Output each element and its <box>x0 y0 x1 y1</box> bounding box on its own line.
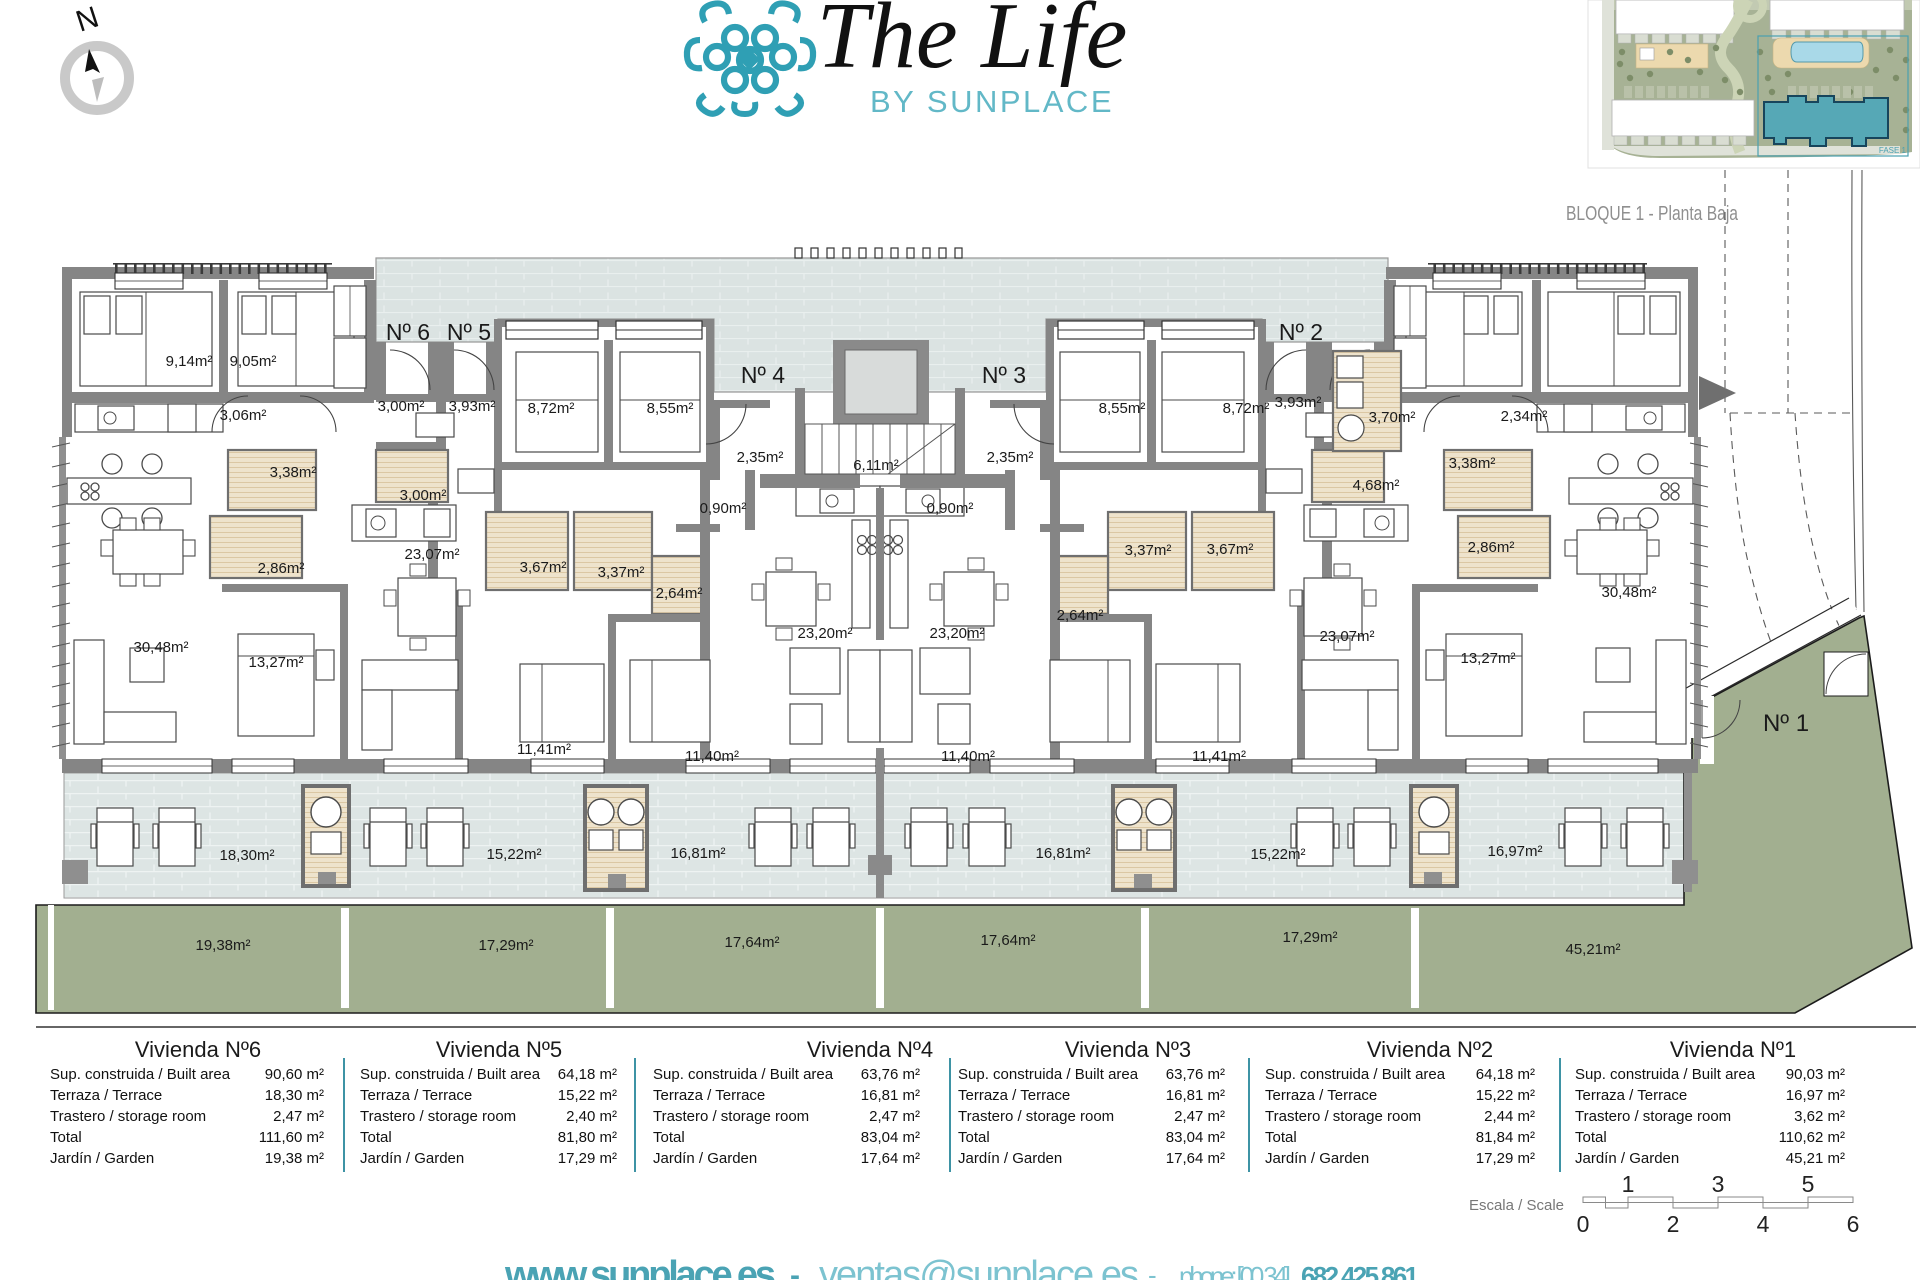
svg-text:23,07m²: 23,07m² <box>404 546 459 563</box>
svg-text:Vivienda Nº2: Vivienda Nº2 <box>1367 1037 1493 1062</box>
svg-text:3,37m²: 3,37m² <box>598 564 645 581</box>
svg-text:Total: Total <box>958 1129 990 1146</box>
svg-text:2,44 m²: 2,44 m² <box>1484 1108 1535 1125</box>
svg-text:64,18 m²: 64,18 m² <box>1476 1066 1535 1083</box>
svg-text:Total: Total <box>1575 1129 1607 1146</box>
svg-text:4: 4 <box>1757 1211 1770 1237</box>
svg-text:Sup. construida / Built area: Sup. construida / Built area <box>360 1066 541 1083</box>
svg-text:18,30 m²: 18,30 m² <box>265 1087 324 1104</box>
svg-text:Terraza / Terrace: Terraza / Terrace <box>653 1087 765 1104</box>
svg-text:Vivienda Nº6: Vivienda Nº6 <box>135 1037 261 1062</box>
svg-text:2,47 m²: 2,47 m² <box>869 1108 920 1125</box>
svg-text:19,38 m²: 19,38 m² <box>265 1150 324 1167</box>
svg-text:4,68m²: 4,68m² <box>1353 477 1400 494</box>
svg-text:Vivienda Nº3: Vivienda Nº3 <box>1065 1037 1191 1062</box>
svg-text:64,18 m²: 64,18 m² <box>558 1066 617 1083</box>
svg-text:17,29 m²: 17,29 m² <box>558 1150 617 1167</box>
svg-text:Total: Total <box>50 1129 82 1146</box>
svg-text:Jardín / Garden: Jardín / Garden <box>50 1150 154 1167</box>
svg-text:16,97m²: 16,97m² <box>1487 843 1542 860</box>
svg-text:Sup. construida / Built area: Sup. construida / Built area <box>653 1066 834 1083</box>
svg-text:Trastero / storage room: Trastero / storage room <box>1265 1108 1421 1125</box>
svg-text:11,41m²: 11,41m² <box>517 741 571 758</box>
svg-text:Trastero / storage room: Trastero / storage room <box>1575 1108 1731 1125</box>
svg-text:2,35m²: 2,35m² <box>737 449 784 466</box>
svg-text:Terraza / Terrace: Terraza / Terrace <box>958 1087 1070 1104</box>
svg-text:Trastero / storage room: Trastero / storage room <box>958 1108 1114 1125</box>
svg-text:16,81 m²: 16,81 m² <box>861 1087 920 1104</box>
svg-text:8,55m²: 8,55m² <box>647 400 694 417</box>
svg-text:BY SUNPLACE: BY SUNPLACE <box>870 84 1114 119</box>
svg-text:3: 3 <box>1712 1171 1725 1197</box>
svg-text:2,64m²: 2,64m² <box>1057 607 1104 624</box>
svg-text:3,67m²: 3,67m² <box>1207 541 1254 558</box>
svg-text:15,22m²: 15,22m² <box>486 846 541 863</box>
svg-text:6: 6 <box>1847 1211 1860 1237</box>
svg-text:The Life: The Life <box>817 0 1128 88</box>
svg-text:30,48m²: 30,48m² <box>133 639 188 656</box>
svg-text:5: 5 <box>1802 1171 1815 1197</box>
svg-text:Jardín / Garden: Jardín / Garden <box>958 1150 1062 1167</box>
svg-text:Trastero / storage room: Trastero / storage room <box>360 1108 516 1125</box>
svg-text:-: - <box>1148 1260 1157 1280</box>
svg-text:Nº 1: Nº 1 <box>1763 710 1809 737</box>
svg-text:83,04 m²: 83,04 m² <box>1166 1129 1225 1146</box>
svg-text:11,41m²: 11,41m² <box>1192 748 1246 765</box>
svg-text:15,22 m²: 15,22 m² <box>1476 1087 1535 1104</box>
svg-text:ventas@sunplace.es: ventas@sunplace.es <box>819 1254 1139 1280</box>
svg-text:2,47 m²: 2,47 m² <box>1174 1108 1225 1125</box>
svg-text:3,06m²: 3,06m² <box>220 407 267 424</box>
svg-text:FASE 1: FASE 1 <box>1879 146 1907 155</box>
svg-text:17,64m²: 17,64m² <box>724 934 779 951</box>
svg-text:Terraza / Terrace: Terraza / Terrace <box>360 1087 472 1104</box>
svg-text:Sup. construida / Built area: Sup. construida / Built area <box>1575 1066 1756 1083</box>
svg-text:Nº 4: Nº 4 <box>741 362 785 388</box>
svg-text:Nº 3: Nº 3 <box>982 362 1026 388</box>
svg-text:Jardín / Garden: Jardín / Garden <box>360 1150 464 1167</box>
svg-text:2: 2 <box>1667 1211 1680 1237</box>
svg-text:18,30m²: 18,30m² <box>219 847 274 864</box>
svg-text:Vivienda Nº1: Vivienda Nº1 <box>1670 1037 1796 1062</box>
svg-text:Jardín / Garden: Jardín / Garden <box>653 1150 757 1167</box>
svg-text:3,00m²: 3,00m² <box>400 487 447 504</box>
svg-text:Vivienda Nº4: Vivienda Nº4 <box>807 1037 933 1062</box>
svg-text:-: - <box>790 1259 800 1280</box>
svg-text:17,64 m²: 17,64 m² <box>1166 1150 1225 1167</box>
svg-text:13,27m²: 13,27m² <box>1460 650 1515 667</box>
svg-text:Jardín / Garden: Jardín / Garden <box>1265 1150 1369 1167</box>
svg-text:phone: [00 34]: phone: [00 34] <box>1179 1261 1291 1280</box>
svg-text:Total: Total <box>1265 1129 1297 1146</box>
svg-text:BLOQUE 1 - Planta Baja: BLOQUE 1 - Planta Baja <box>1566 203 1739 225</box>
svg-text:www.sunplace.es: www.sunplace.es <box>504 1254 776 1280</box>
svg-text:Terraza / Terrace: Terraza / Terrace <box>1575 1087 1687 1104</box>
svg-text:3,67m²: 3,67m² <box>520 559 567 576</box>
svg-text:16,81m²: 16,81m² <box>1035 845 1090 862</box>
svg-text:Terraza / Terrace: Terraza / Terrace <box>1265 1087 1377 1104</box>
svg-text:11,40m²: 11,40m² <box>685 748 739 765</box>
svg-text:Total: Total <box>360 1129 392 1146</box>
svg-text:16,97 m²: 16,97 m² <box>1786 1087 1845 1104</box>
svg-text:Nº 2: Nº 2 <box>1279 319 1323 345</box>
svg-text:682 425 861: 682 425 861 <box>1301 1261 1419 1280</box>
svg-text:2,35m²: 2,35m² <box>987 449 1034 466</box>
svg-text:Nº 5: Nº 5 <box>447 319 491 345</box>
svg-text:16,81 m²: 16,81 m² <box>1166 1087 1225 1104</box>
svg-text:17,64m²: 17,64m² <box>980 932 1035 949</box>
svg-text:23,07m²: 23,07m² <box>1319 628 1374 645</box>
svg-text:Jardín / Garden: Jardín / Garden <box>1575 1150 1679 1167</box>
svg-text:2,40 m²: 2,40 m² <box>566 1108 617 1125</box>
svg-text:Terraza / Terrace: Terraza / Terrace <box>50 1087 162 1104</box>
svg-text:63,76 m²: 63,76 m² <box>1166 1066 1225 1083</box>
svg-text:17,64 m²: 17,64 m² <box>861 1150 920 1167</box>
svg-text:8,72m²: 8,72m² <box>528 400 575 417</box>
svg-text:23,20m²: 23,20m² <box>797 625 852 642</box>
svg-text:3,62 m²: 3,62 m² <box>1794 1108 1845 1125</box>
svg-text:9,14m²: 9,14m² <box>166 353 213 370</box>
svg-text:3,38m²: 3,38m² <box>270 464 317 481</box>
svg-text:0: 0 <box>1577 1211 1590 1237</box>
svg-text:3,38m²: 3,38m² <box>1449 455 1496 472</box>
svg-text:81,80 m²: 81,80 m² <box>558 1129 617 1146</box>
svg-text:Sup. construida / Built area: Sup. construida / Built area <box>50 1066 231 1083</box>
svg-text:6,11m²: 6,11m² <box>853 457 899 474</box>
svg-text:Trastero / storage room: Trastero / storage room <box>50 1108 206 1125</box>
svg-text:90,60 m²: 90,60 m² <box>265 1066 324 1083</box>
svg-text:15,22m²: 15,22m² <box>1250 846 1305 863</box>
svg-text:3,37m²: 3,37m² <box>1125 542 1172 559</box>
svg-text:23,20m²: 23,20m² <box>929 625 984 642</box>
svg-text:45,21m²: 45,21m² <box>1565 941 1620 958</box>
svg-text:83,04 m²: 83,04 m² <box>861 1129 920 1146</box>
svg-text:Sup. construida / Built area: Sup. construida / Built area <box>1265 1066 1446 1083</box>
svg-text:2,34m²: 2,34m² <box>1501 408 1548 425</box>
svg-text:3,70m²: 3,70m² <box>1369 409 1416 426</box>
svg-text:0,90m²: 0,90m² <box>700 500 747 517</box>
svg-text:0,90m²: 0,90m² <box>927 500 974 517</box>
svg-text:17,29m²: 17,29m² <box>1282 929 1337 946</box>
svg-text:1: 1 <box>1622 1171 1635 1197</box>
svg-text:90,03 m²: 90,03 m² <box>1786 1066 1845 1083</box>
svg-text:16,81m²: 16,81m² <box>670 845 725 862</box>
svg-text:8,55m²: 8,55m² <box>1099 400 1146 417</box>
svg-text:30,48m²: 30,48m² <box>1601 584 1656 601</box>
svg-text:8,72m²: 8,72m² <box>1223 400 1270 417</box>
svg-text:Sup. construida / Built area: Sup. construida / Built area <box>958 1066 1139 1083</box>
svg-text:17,29 m²: 17,29 m² <box>1476 1150 1535 1167</box>
svg-text:Trastero / storage room: Trastero / storage room <box>653 1108 809 1125</box>
svg-text:9,05m²: 9,05m² <box>230 353 277 370</box>
svg-text:63,76 m²: 63,76 m² <box>861 1066 920 1083</box>
svg-text:Nº 6: Nº 6 <box>386 319 430 345</box>
svg-text:15,22 m²: 15,22 m² <box>558 1087 617 1104</box>
svg-text:2,64m²: 2,64m² <box>656 585 703 602</box>
svg-text:81,84 m²: 81,84 m² <box>1476 1129 1535 1146</box>
svg-text:Vivienda Nº5: Vivienda Nº5 <box>436 1037 562 1062</box>
svg-text:3,93m²: 3,93m² <box>449 398 496 415</box>
svg-text:3,93m²: 3,93m² <box>1275 394 1322 411</box>
svg-text:45,21 m²: 45,21 m² <box>1786 1150 1845 1167</box>
svg-text:2,47 m²: 2,47 m² <box>273 1108 324 1125</box>
svg-text:13,27m²: 13,27m² <box>248 654 303 671</box>
svg-text:11,40m²: 11,40m² <box>941 748 995 765</box>
svg-text:110,62 m²: 110,62 m² <box>1779 1129 1845 1146</box>
svg-text:2,86m²: 2,86m² <box>1468 539 1515 556</box>
svg-text:17,29m²: 17,29m² <box>478 937 533 954</box>
svg-text:111,60 m²: 111,60 m² <box>259 1129 324 1146</box>
svg-text:2,86m²: 2,86m² <box>258 560 305 577</box>
svg-text:3,00m²: 3,00m² <box>378 398 425 415</box>
svg-text:Escala / Scale: Escala / Scale <box>1469 1197 1564 1214</box>
svg-text:19,38m²: 19,38m² <box>195 937 250 954</box>
svg-text:Total: Total <box>653 1129 685 1146</box>
